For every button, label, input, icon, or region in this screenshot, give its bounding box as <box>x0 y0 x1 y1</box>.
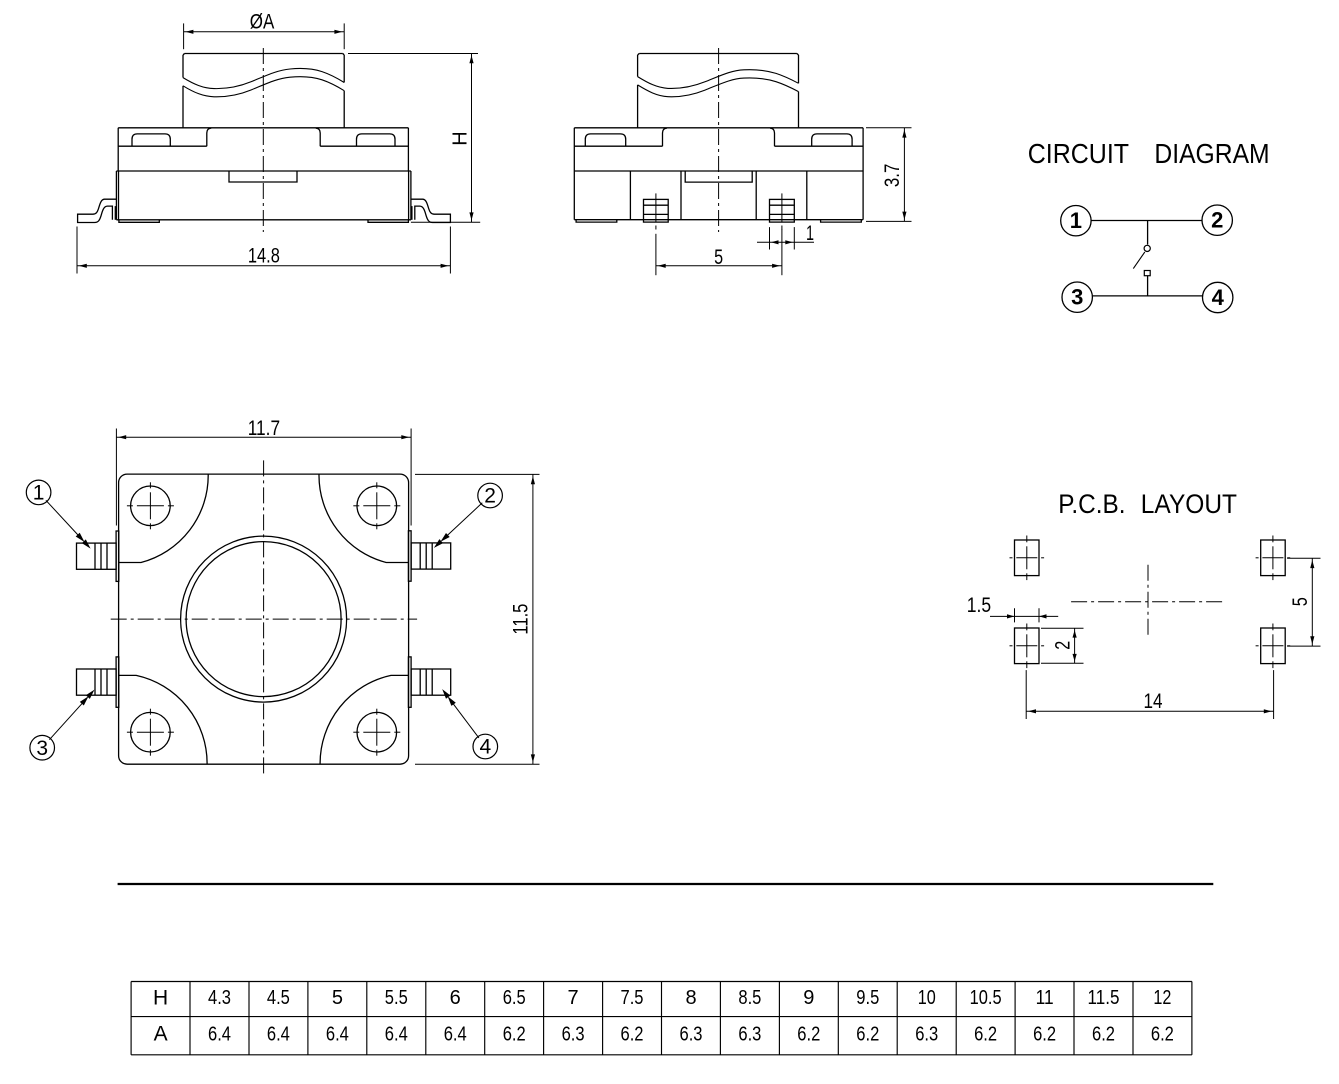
svg-text:9.5: 9.5 <box>856 987 879 1009</box>
svg-text:ØA: ØA <box>250 11 275 34</box>
svg-text:10: 10 <box>918 987 936 1009</box>
svg-text:9: 9 <box>803 987 814 1009</box>
svg-text:6: 6 <box>450 987 461 1009</box>
svg-text:6.3: 6.3 <box>562 1023 585 1045</box>
svg-text:2: 2 <box>1211 208 1223 233</box>
svg-text:4.5: 4.5 <box>267 987 290 1009</box>
svg-text:5.5: 5.5 <box>385 987 408 1009</box>
svg-text:3: 3 <box>36 737 48 760</box>
svg-text:10.5: 10.5 <box>970 987 1002 1009</box>
svg-text:1: 1 <box>33 482 45 505</box>
svg-text:11.7: 11.7 <box>248 417 280 440</box>
svg-text:H: H <box>450 131 472 145</box>
svg-text:4.3: 4.3 <box>208 987 231 1009</box>
svg-text:6.5: 6.5 <box>503 987 526 1009</box>
svg-text:LAYOUT: LAYOUT <box>1141 489 1237 519</box>
svg-text:A: A <box>154 1023 168 1046</box>
svg-text:6.2: 6.2 <box>797 1023 820 1045</box>
svg-text:6.2: 6.2 <box>1033 1023 1056 1045</box>
svg-text:H: H <box>153 986 168 1009</box>
svg-text:2: 2 <box>484 485 496 508</box>
svg-text:6.3: 6.3 <box>738 1023 761 1045</box>
svg-text:12: 12 <box>1153 987 1171 1009</box>
svg-text:14.8: 14.8 <box>248 244 280 267</box>
svg-text:6.3: 6.3 <box>915 1023 938 1045</box>
svg-text:3.7: 3.7 <box>881 164 904 188</box>
svg-text:DIAGRAM: DIAGRAM <box>1154 138 1269 169</box>
svg-text:3: 3 <box>1071 285 1083 310</box>
svg-text:5: 5 <box>1289 597 1312 606</box>
svg-text:P.C.B.: P.C.B. <box>1058 489 1125 519</box>
svg-text:14: 14 <box>1144 690 1163 713</box>
svg-text:8.5: 8.5 <box>738 987 761 1009</box>
svg-text:8: 8 <box>685 987 696 1009</box>
svg-text:4: 4 <box>479 736 491 759</box>
svg-text:2: 2 <box>1052 641 1075 650</box>
svg-text:6.4: 6.4 <box>444 1023 467 1045</box>
svg-text:7: 7 <box>568 987 579 1009</box>
svg-text:5: 5 <box>714 246 723 269</box>
svg-text:6.4: 6.4 <box>208 1023 231 1045</box>
svg-text:6.2: 6.2 <box>856 1023 879 1045</box>
svg-text:11.5: 11.5 <box>510 604 533 635</box>
svg-text:4: 4 <box>1212 285 1225 310</box>
svg-text:CIRCUIT: CIRCUIT <box>1028 138 1129 169</box>
svg-text:6.4: 6.4 <box>326 1023 349 1045</box>
svg-text:11: 11 <box>1036 987 1054 1009</box>
svg-text:6.2: 6.2 <box>621 1023 644 1045</box>
svg-text:1: 1 <box>1070 208 1082 233</box>
svg-text:1: 1 <box>806 222 814 245</box>
svg-text:6.2: 6.2 <box>1151 1023 1174 1045</box>
svg-text:6.2: 6.2 <box>974 1023 997 1045</box>
svg-text:6.3: 6.3 <box>680 1023 703 1045</box>
svg-text:11.5: 11.5 <box>1088 987 1120 1009</box>
svg-text:6.2: 6.2 <box>503 1023 526 1045</box>
svg-text:5: 5 <box>332 987 343 1009</box>
svg-text:6.4: 6.4 <box>385 1023 408 1045</box>
svg-text:6.2: 6.2 <box>1092 1023 1115 1045</box>
svg-text:1.5: 1.5 <box>967 594 991 617</box>
svg-text:7.5: 7.5 <box>621 987 644 1009</box>
svg-text:6.4: 6.4 <box>267 1023 290 1045</box>
